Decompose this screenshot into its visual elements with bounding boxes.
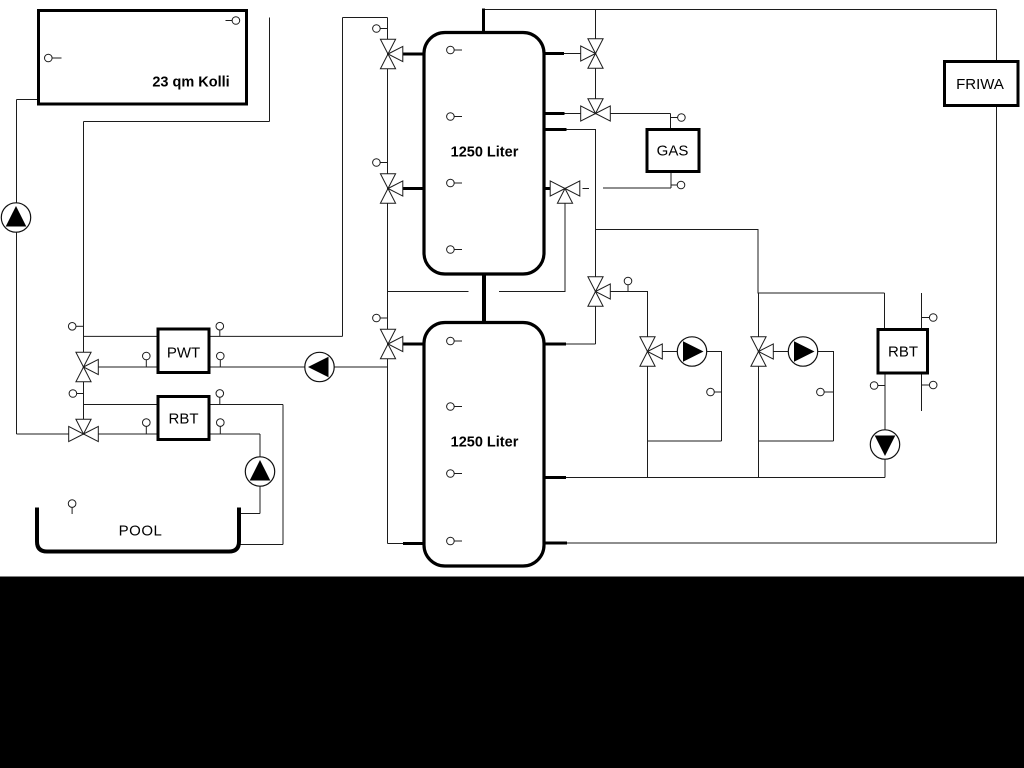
svg-text:GAS: GAS: [657, 143, 689, 160]
svg-text:1250 Liter: 1250 Liter: [451, 145, 519, 161]
svg-text:1250 Liter: 1250 Liter: [451, 435, 519, 451]
svg-text:POOL: POOL: [119, 523, 163, 540]
svg-text:RBT: RBT: [888, 344, 918, 361]
svg-text:23 qm Kolli: 23 qm Kolli: [152, 75, 229, 91]
svg-text:FRIWA: FRIWA: [956, 76, 1004, 93]
svg-text:PWT: PWT: [167, 345, 200, 362]
svg-text:RBT: RBT: [169, 411, 199, 428]
